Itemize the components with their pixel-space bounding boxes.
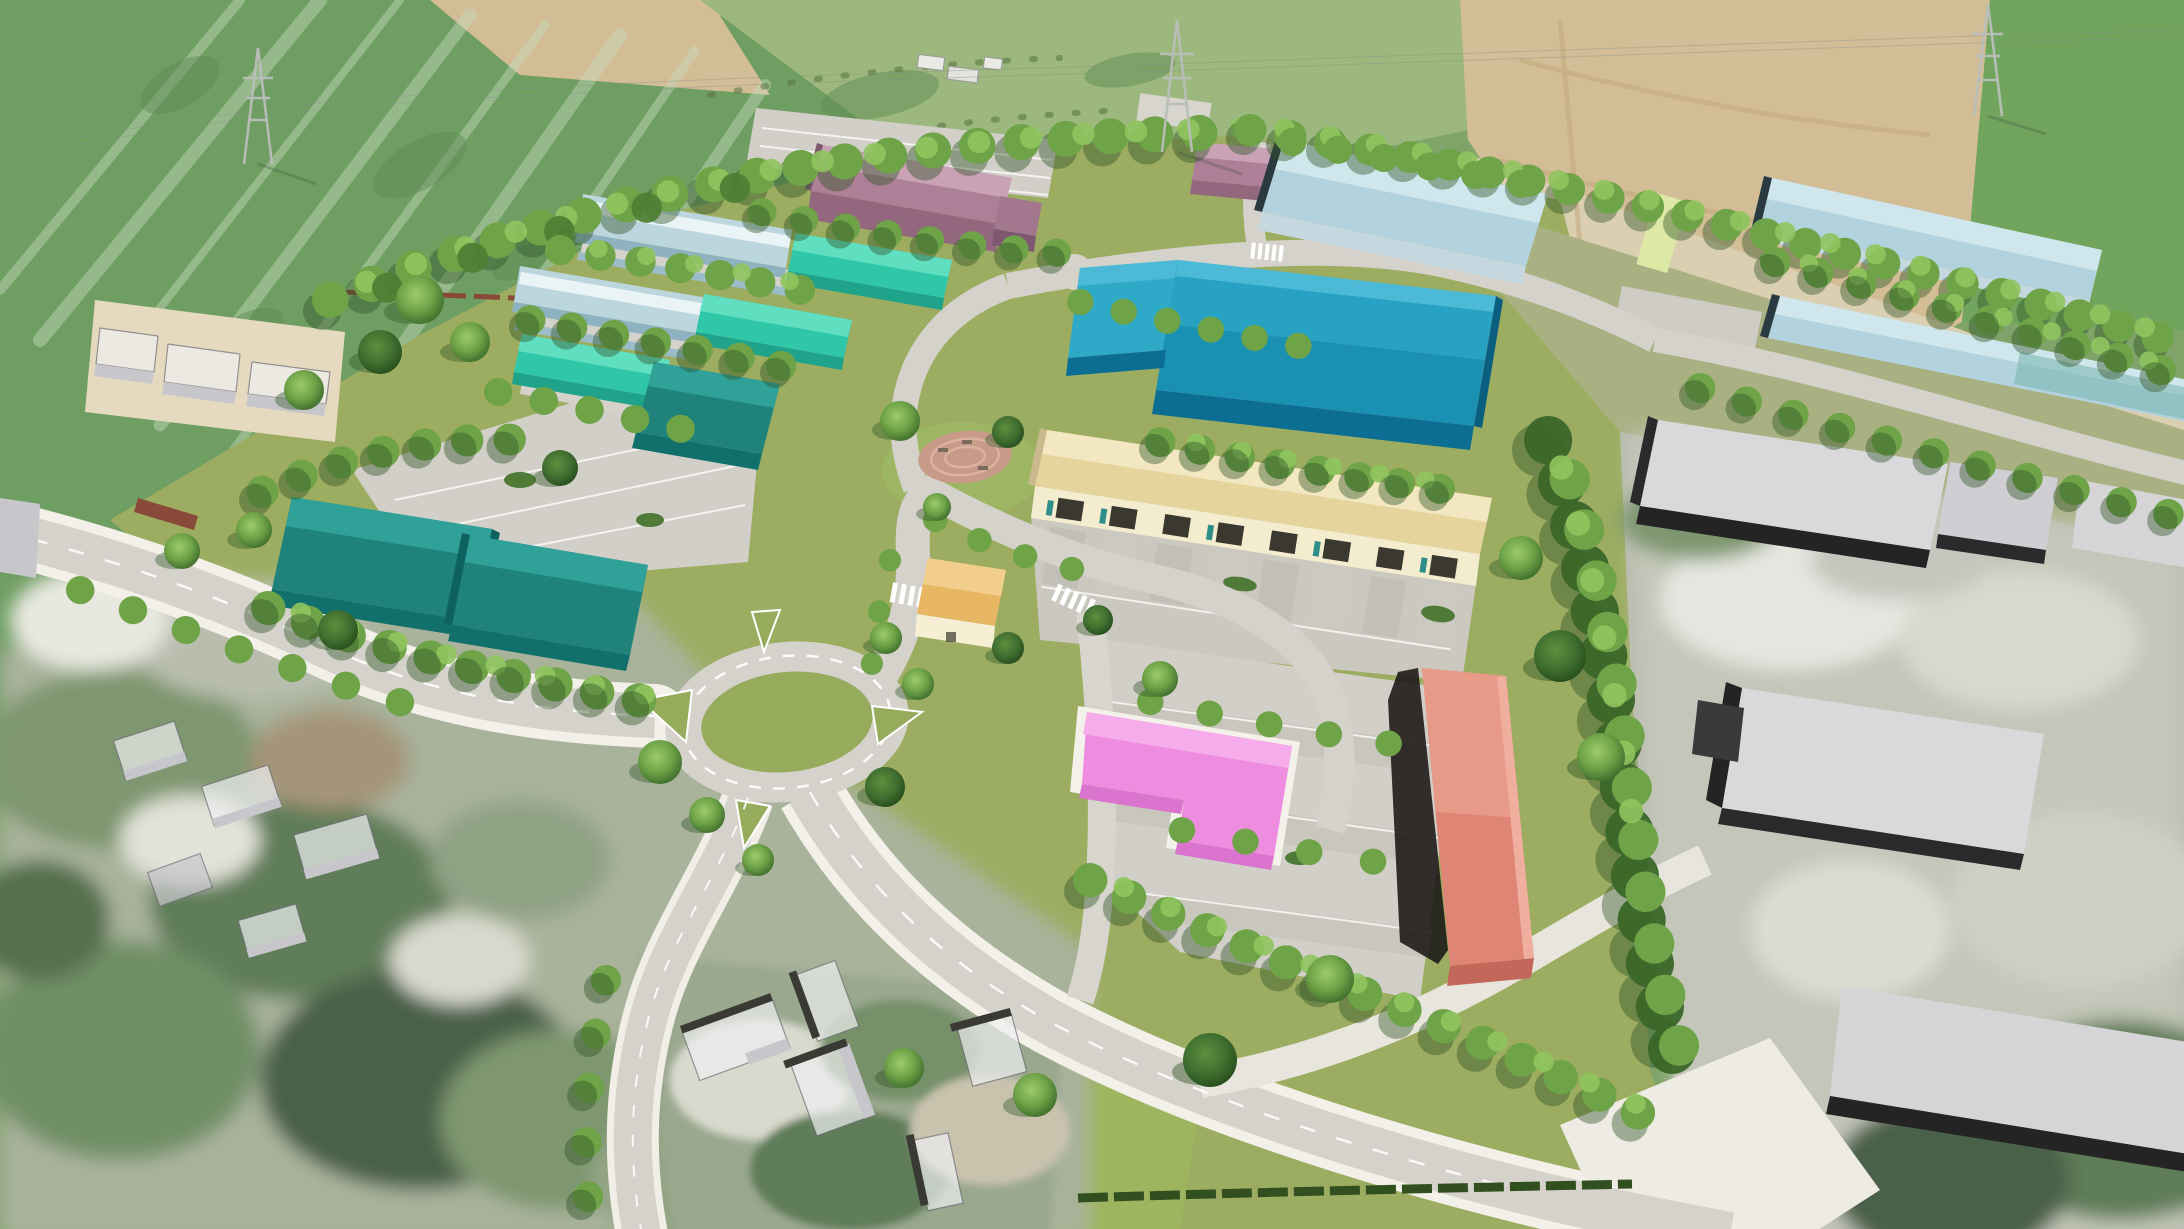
plaza-bench [938, 448, 948, 452]
parking-island [636, 513, 664, 527]
plaza-bench [962, 440, 972, 444]
aerial-masterplan-render: ​ [0, 0, 2184, 1229]
aerial-render-stage: ​ [0, 0, 2184, 1229]
golden-pavilion [915, 558, 1006, 648]
parking-island [504, 472, 536, 488]
existing-building-left-edge [0, 498, 40, 578]
plaza-bench [978, 466, 988, 470]
